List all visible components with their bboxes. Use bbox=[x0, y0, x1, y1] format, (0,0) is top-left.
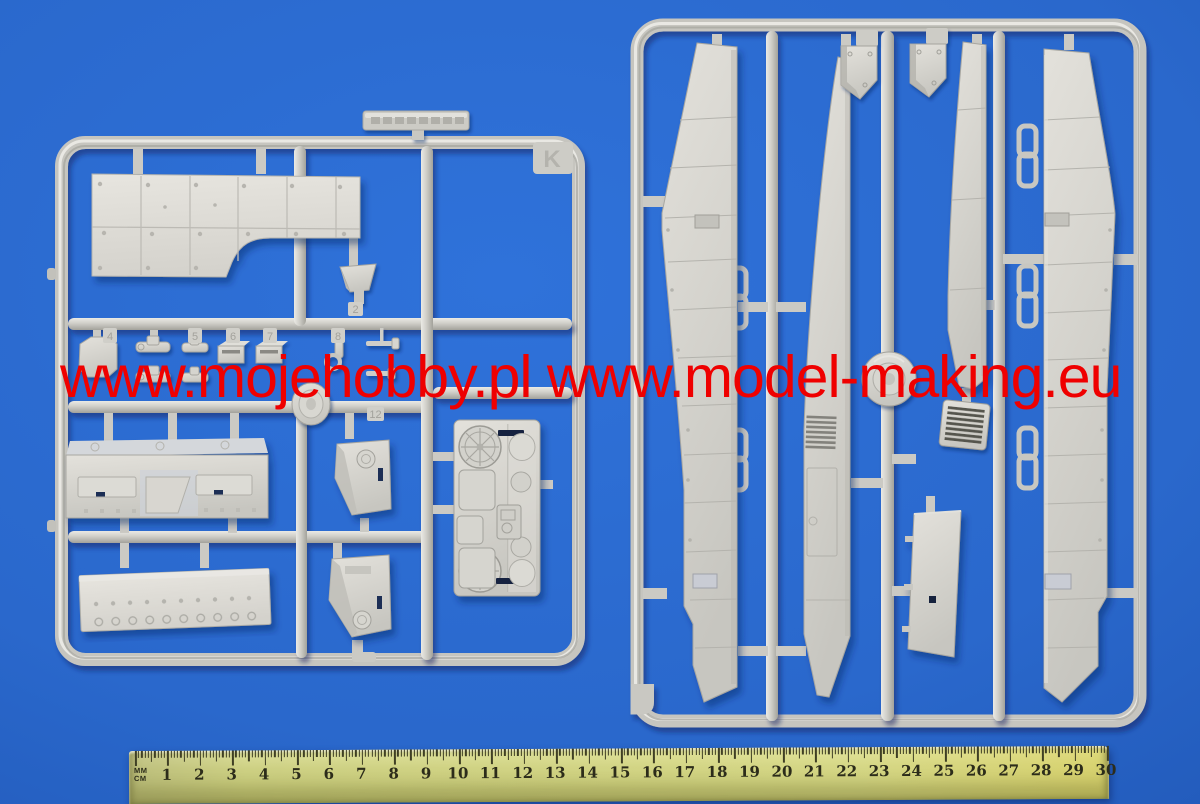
ruler-tick bbox=[472, 749, 473, 756]
ruler-tick bbox=[1042, 746, 1044, 761]
ruler-tick bbox=[1071, 746, 1072, 753]
ruler-tick bbox=[303, 750, 304, 757]
ruler-tick bbox=[459, 749, 461, 764]
ruler-tick bbox=[650, 748, 651, 755]
ruler-tick bbox=[877, 747, 878, 754]
ruler-tick bbox=[1006, 746, 1007, 753]
ruler-tick bbox=[990, 746, 991, 753]
ruler-tick bbox=[644, 748, 645, 755]
ruler-tick bbox=[640, 748, 641, 755]
ruler-tick bbox=[699, 748, 700, 755]
ruler-tick bbox=[164, 751, 165, 758]
ruler-tick bbox=[222, 751, 223, 758]
ruler-tick bbox=[747, 748, 748, 755]
ruler-tick bbox=[780, 748, 781, 755]
ruler-tick bbox=[420, 749, 421, 756]
ruler-tick bbox=[1100, 746, 1101, 753]
ruler-tick bbox=[381, 750, 382, 757]
ruler-number: 13 bbox=[545, 764, 566, 782]
ruler-tick bbox=[148, 751, 149, 758]
hull-side-part bbox=[66, 438, 268, 518]
ruler-tick bbox=[812, 747, 813, 754]
ruler-tick bbox=[912, 747, 914, 762]
ruler-tick bbox=[831, 747, 832, 758]
ruler-tick bbox=[757, 748, 758, 755]
ruler-tick bbox=[575, 749, 576, 756]
ruler-tick bbox=[702, 748, 703, 759]
ruler-tick bbox=[1087, 746, 1088, 753]
ruler-tick bbox=[446, 749, 447, 756]
ruler-tick bbox=[258, 750, 259, 757]
ruler-tick bbox=[213, 751, 214, 758]
ruler-tick bbox=[676, 748, 677, 755]
ruler-tick bbox=[754, 748, 755, 755]
ruler-tick bbox=[864, 747, 865, 758]
ruler-tick bbox=[1061, 746, 1062, 753]
ruler-tick bbox=[1052, 746, 1053, 753]
ruler-tick bbox=[611, 748, 612, 755]
ruler-tick bbox=[138, 751, 139, 758]
ruler-tick bbox=[530, 749, 531, 756]
ruler-tick bbox=[909, 747, 910, 754]
ruler-tick bbox=[362, 750, 364, 765]
ruler-tick bbox=[822, 747, 823, 754]
ruler-tick bbox=[705, 748, 706, 755]
ruler-tick bbox=[932, 747, 933, 754]
ruler-tick bbox=[631, 748, 632, 755]
ruler-tick bbox=[734, 748, 735, 759]
ruler-tick bbox=[540, 749, 541, 760]
ruler-tick bbox=[553, 749, 554, 756]
ruler: MM CM 1234567891011121314151617181920212… bbox=[129, 746, 1109, 804]
ruler-tick bbox=[993, 746, 994, 757]
ruler-number: 26 bbox=[966, 762, 987, 780]
part-tab-label: 6 bbox=[230, 331, 236, 343]
ruler-number: 19 bbox=[739, 763, 760, 781]
sprue-id-plaque bbox=[363, 111, 469, 140]
ruler-unit-label: MM CM bbox=[134, 767, 148, 782]
ruler-tick bbox=[802, 747, 803, 754]
ruler-number: 7 bbox=[356, 765, 367, 783]
ruler-tick bbox=[190, 751, 191, 758]
ruler-tick bbox=[524, 749, 526, 764]
ruler-tick bbox=[767, 748, 768, 759]
ruler-tick bbox=[268, 750, 269, 757]
ruler-tick bbox=[297, 750, 299, 765]
ruler-tick bbox=[861, 747, 862, 754]
ruler-tick bbox=[342, 750, 343, 757]
ruler-tick bbox=[352, 750, 353, 757]
ruler-tick bbox=[663, 748, 664, 755]
ruler-tick bbox=[660, 748, 661, 755]
ruler-tick bbox=[543, 749, 544, 756]
ruler-tick bbox=[828, 747, 829, 754]
ruler-tick bbox=[1078, 746, 1079, 753]
ruler-tick bbox=[582, 749, 583, 756]
bucket-part-upper bbox=[335, 440, 391, 515]
ruler-tick bbox=[656, 748, 657, 755]
ruler-tick bbox=[1068, 746, 1069, 753]
ruler-tick bbox=[621, 748, 623, 763]
ruler-tick bbox=[183, 751, 184, 762]
ruler-tick bbox=[653, 748, 655, 763]
ruler-tick bbox=[559, 749, 560, 756]
ruler-unit-cm: CM bbox=[134, 774, 148, 782]
ruler-tick bbox=[368, 750, 369, 757]
part-tab-label: 7 bbox=[267, 331, 273, 343]
ruler-tick bbox=[598, 749, 599, 756]
ruler-tick bbox=[277, 750, 278, 757]
ruler-tick bbox=[469, 749, 470, 756]
ruler-number: 5 bbox=[291, 765, 302, 783]
hull-bottom-part bbox=[454, 420, 540, 596]
ruler-tick bbox=[488, 749, 489, 756]
ruler-tick bbox=[232, 750, 234, 765]
ruler-tick bbox=[245, 750, 246, 757]
ruler-tick bbox=[964, 747, 965, 754]
ruler-tick bbox=[290, 750, 291, 757]
ruler-tick bbox=[938, 747, 939, 754]
ruler-tick bbox=[955, 747, 956, 754]
ruler-number: 29 bbox=[1063, 761, 1084, 779]
ruler-tick bbox=[951, 747, 952, 754]
ruler-tick bbox=[673, 748, 674, 755]
ruler-tick bbox=[682, 748, 683, 755]
ruler-tick bbox=[1003, 746, 1004, 753]
ruler-tick bbox=[430, 749, 431, 756]
ruler-number: 28 bbox=[1031, 761, 1052, 779]
ruler-tick bbox=[439, 749, 440, 756]
roof-plate-part bbox=[92, 174, 360, 277]
ruler-tick bbox=[426, 749, 428, 764]
ruler-tick bbox=[417, 749, 418, 756]
ruler-tick bbox=[556, 749, 558, 764]
ruler-tick bbox=[809, 747, 810, 754]
ruler-tick bbox=[608, 748, 609, 755]
ruler-tick bbox=[948, 747, 949, 754]
ruler-tick bbox=[605, 749, 606, 760]
ruler-tick bbox=[585, 749, 586, 756]
ruler-tick bbox=[423, 749, 424, 756]
ruler-tick bbox=[135, 751, 137, 766]
ruler-tick bbox=[226, 750, 227, 757]
ruler-tick bbox=[1094, 746, 1095, 753]
ruler-tick bbox=[770, 748, 771, 755]
ruler-tick bbox=[984, 747, 985, 754]
ruler-tick bbox=[725, 748, 726, 755]
ruler-number: 11 bbox=[480, 764, 501, 782]
ruler-tick bbox=[1058, 746, 1059, 757]
ruler-tick bbox=[1107, 746, 1109, 761]
ruler-tick bbox=[332, 750, 333, 757]
ruler-tick bbox=[465, 749, 466, 756]
shield-part-2 bbox=[910, 28, 948, 97]
ruler-tick bbox=[1065, 746, 1066, 753]
ruler-tick bbox=[494, 749, 495, 756]
ruler-tick bbox=[1097, 746, 1098, 753]
ruler-tick bbox=[844, 747, 845, 754]
ruler-tick bbox=[482, 749, 483, 756]
ruler-tick bbox=[815, 747, 817, 762]
ruler-tick bbox=[200, 751, 202, 766]
ruler-number: 18 bbox=[707, 763, 728, 781]
ruler-tick bbox=[316, 750, 317, 757]
ruler-tick bbox=[980, 747, 981, 754]
ruler-tick bbox=[906, 747, 907, 754]
ruler-tick bbox=[572, 749, 573, 760]
ruler-tick bbox=[601, 749, 602, 756]
ruler-tick bbox=[958, 747, 959, 754]
ruler-tick bbox=[857, 747, 858, 754]
ruler-tick bbox=[783, 748, 785, 763]
ruler-tick bbox=[320, 750, 321, 757]
ruler-number: 24 bbox=[901, 762, 922, 780]
ruler-tick bbox=[835, 747, 836, 754]
ruler-number: 21 bbox=[804, 762, 825, 780]
ruler-tick bbox=[394, 750, 396, 765]
ruler-tick bbox=[1081, 746, 1082, 753]
ruler-tick bbox=[313, 750, 314, 761]
ruler-tick bbox=[255, 750, 256, 757]
ruler-tick bbox=[251, 750, 252, 757]
ruler-tick bbox=[323, 750, 324, 757]
ruler-number: 4 bbox=[259, 765, 270, 783]
ruler-tick bbox=[287, 750, 288, 757]
ruler-tick bbox=[177, 751, 178, 758]
ruler-tick bbox=[371, 750, 372, 757]
ruler-tick bbox=[893, 747, 894, 754]
ruler-tick bbox=[307, 750, 308, 757]
ruler-tick bbox=[271, 750, 272, 757]
ruler-tick bbox=[504, 749, 505, 756]
ruler-tick bbox=[592, 749, 593, 756]
ruler-tick bbox=[1010, 746, 1012, 761]
ruler-tick bbox=[154, 751, 155, 758]
ruler-tick bbox=[329, 750, 331, 765]
ruler-number: 8 bbox=[388, 765, 399, 783]
ruler-number: 17 bbox=[674, 763, 695, 781]
ruler-tick bbox=[456, 749, 457, 756]
bucket-part-lower bbox=[329, 555, 391, 637]
ruler-tick bbox=[145, 751, 146, 758]
ruler-tick bbox=[187, 751, 188, 758]
ruler-tick bbox=[239, 750, 240, 757]
narrow-blade-part bbox=[948, 42, 986, 389]
ruler-tick bbox=[378, 750, 379, 761]
ruler-tick bbox=[517, 749, 518, 756]
ruler-tick bbox=[848, 747, 850, 762]
ruler-tick bbox=[750, 748, 752, 763]
ruler-tick bbox=[485, 749, 486, 756]
ruler-tick bbox=[1013, 746, 1014, 753]
ruler-tick bbox=[718, 748, 720, 763]
ruler-tick bbox=[760, 748, 761, 755]
ruler-tick bbox=[537, 749, 538, 756]
ruler-tick bbox=[637, 748, 638, 759]
ruler-tick bbox=[170, 751, 171, 758]
part-tab-label: 4 bbox=[107, 331, 113, 343]
watermark-text: www.mojehobby.pl www.model-making.eu bbox=[60, 348, 1121, 407]
ruler-tick bbox=[712, 748, 713, 755]
ruler-tick bbox=[903, 747, 904, 754]
ruler-tick bbox=[614, 748, 615, 755]
ruler-tick bbox=[507, 749, 508, 760]
ruler-tick bbox=[563, 749, 564, 756]
ruler-tick bbox=[854, 747, 855, 754]
ruler-tick bbox=[1074, 746, 1076, 761]
ruler-tick bbox=[977, 747, 979, 762]
ruler-tick bbox=[741, 748, 742, 755]
ruler-tick bbox=[942, 747, 943, 754]
ruler-tick bbox=[818, 747, 819, 754]
ruler-tick bbox=[310, 750, 311, 757]
ruler-tick bbox=[413, 750, 414, 757]
ruler-tick bbox=[695, 748, 696, 755]
ruler-tick bbox=[883, 747, 884, 754]
ruler-tick bbox=[407, 750, 408, 757]
ruler-tick bbox=[388, 750, 389, 757]
ruler-tick bbox=[618, 748, 619, 755]
ruler-tick bbox=[384, 750, 385, 757]
ruler-tick bbox=[491, 749, 493, 764]
ruler-tick bbox=[527, 749, 528, 756]
ruler-tick bbox=[1032, 746, 1033, 753]
ruler-tick bbox=[851, 747, 852, 754]
ruler-tick bbox=[1036, 746, 1037, 753]
funnel-part bbox=[340, 264, 376, 304]
ruler-tick bbox=[1055, 746, 1056, 753]
ruler-number: 9 bbox=[421, 764, 432, 782]
ruler-tick bbox=[514, 749, 515, 756]
ruler-ticks: 1234567891011121314151617181920212223242… bbox=[129, 746, 1109, 804]
ruler-tick bbox=[968, 747, 969, 754]
ruler-tick bbox=[686, 748, 688, 763]
ruler-tick bbox=[161, 751, 162, 758]
ruler-tick bbox=[141, 751, 142, 758]
ruler-tick bbox=[274, 750, 275, 757]
ruler-tick bbox=[867, 747, 868, 754]
ruler-tick bbox=[624, 748, 625, 755]
ruler-tick bbox=[443, 749, 444, 760]
ruler-tick bbox=[715, 748, 716, 755]
ruler-tick bbox=[520, 749, 521, 756]
ruler-number: 16 bbox=[642, 763, 663, 781]
ruler-tick bbox=[242, 750, 243, 757]
ruler-tick bbox=[216, 751, 217, 762]
ruler-tick bbox=[880, 747, 882, 762]
ruler-tick bbox=[569, 749, 570, 756]
ruler-tick bbox=[158, 751, 159, 758]
ruler-number: 15 bbox=[609, 763, 630, 781]
ruler-tick bbox=[825, 747, 826, 754]
ruler-tick bbox=[1104, 746, 1105, 753]
ruler-tick bbox=[203, 751, 204, 758]
ruler-tick bbox=[206, 751, 207, 758]
ruler-tick bbox=[744, 748, 745, 755]
ruler-tick bbox=[436, 749, 437, 756]
ruler-tick bbox=[151, 751, 152, 762]
ruler-tick bbox=[294, 750, 295, 757]
sprue-gate-nub bbox=[47, 520, 56, 532]
ruler-tick bbox=[679, 748, 680, 755]
ruler-tick bbox=[1029, 746, 1030, 753]
ruler-tick bbox=[669, 748, 670, 759]
ruler-tick bbox=[579, 749, 580, 756]
ruler-tick bbox=[925, 747, 926, 754]
ruler-tick bbox=[365, 750, 366, 757]
ruler-tick bbox=[987, 747, 988, 754]
ruler-tick bbox=[339, 750, 340, 757]
ruler-tick bbox=[731, 748, 732, 755]
ruler-tick bbox=[776, 748, 777, 755]
ruler-tick bbox=[1000, 746, 1001, 753]
ruler-tick bbox=[929, 747, 930, 758]
ruler-tick bbox=[588, 749, 590, 764]
ruler-tick bbox=[511, 749, 512, 756]
ruler-tick bbox=[799, 747, 800, 758]
ruler-tick bbox=[841, 747, 842, 754]
sprue-letter: K bbox=[543, 146, 561, 173]
ruler-tick bbox=[997, 746, 998, 753]
ruler-tick bbox=[595, 749, 596, 756]
ruler-number: 27 bbox=[998, 761, 1019, 779]
ruler-tick bbox=[666, 748, 667, 755]
ruler-tick bbox=[919, 747, 920, 754]
ruler-tick bbox=[1049, 746, 1050, 753]
ruler-tick bbox=[550, 749, 551, 756]
ruler-tick bbox=[449, 749, 450, 756]
ruler-tick bbox=[1045, 746, 1046, 753]
ruler-tick bbox=[462, 749, 463, 756]
ruler-tick bbox=[397, 750, 398, 757]
ruler-tick bbox=[773, 748, 774, 755]
ruler-tick bbox=[887, 747, 888, 754]
ruler-tick bbox=[935, 747, 936, 754]
ruler-tick bbox=[180, 751, 181, 758]
photo-of-model-kit-sprues: { "watermark": { "text": "www.mojehobby.… bbox=[0, 0, 1200, 804]
ruler-tick bbox=[336, 750, 337, 757]
ruler-tick bbox=[838, 747, 839, 754]
ruler-tick bbox=[796, 748, 797, 755]
ruler-tick bbox=[248, 750, 249, 761]
ruler-tick bbox=[916, 747, 917, 754]
ruler-number: 14 bbox=[577, 764, 598, 782]
ruler-tick bbox=[219, 751, 220, 758]
ruler-tick bbox=[404, 750, 405, 757]
ruler-tick bbox=[634, 748, 635, 755]
ruler-tick bbox=[899, 747, 900, 754]
ruler-tick bbox=[721, 748, 722, 755]
ruler-tick bbox=[1084, 746, 1085, 753]
ruler-tick bbox=[391, 750, 392, 757]
ruler-tick bbox=[498, 749, 499, 756]
ruler-tick bbox=[533, 749, 534, 756]
ruler-tick bbox=[433, 749, 434, 756]
part-tab-label: 12 bbox=[369, 409, 381, 421]
ruler-tick bbox=[358, 750, 359, 757]
ruler-tick bbox=[345, 750, 346, 761]
ruler-tick bbox=[692, 748, 693, 755]
ruler-tick bbox=[1026, 746, 1027, 757]
ruler-tick bbox=[209, 751, 210, 758]
ruler-tick bbox=[971, 747, 972, 754]
ruler-tick bbox=[945, 747, 947, 762]
part-tab-label: 8 bbox=[335, 331, 341, 343]
ruler-number: 3 bbox=[226, 765, 237, 783]
ruler-tick bbox=[1023, 746, 1024, 753]
ruler-tick bbox=[546, 749, 547, 756]
part-tab-label: 2 bbox=[352, 304, 358, 316]
